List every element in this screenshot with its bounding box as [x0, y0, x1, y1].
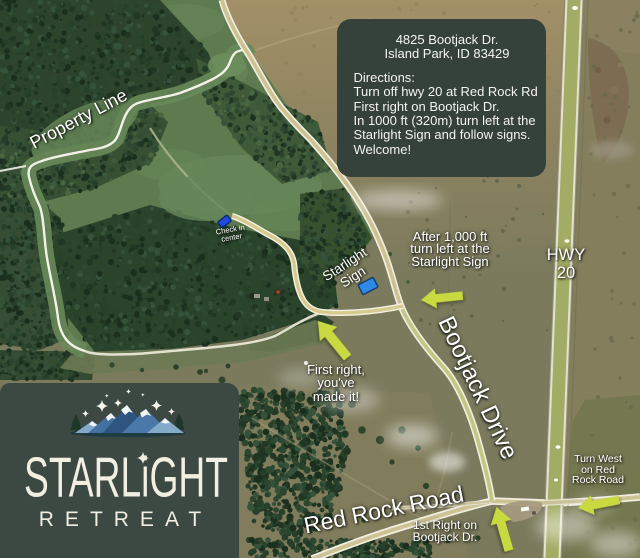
- svg-text:RETREAT: RETREAT: [39, 508, 212, 531]
- svg-text:STARLiGHT: STARLiGHT: [24, 446, 228, 510]
